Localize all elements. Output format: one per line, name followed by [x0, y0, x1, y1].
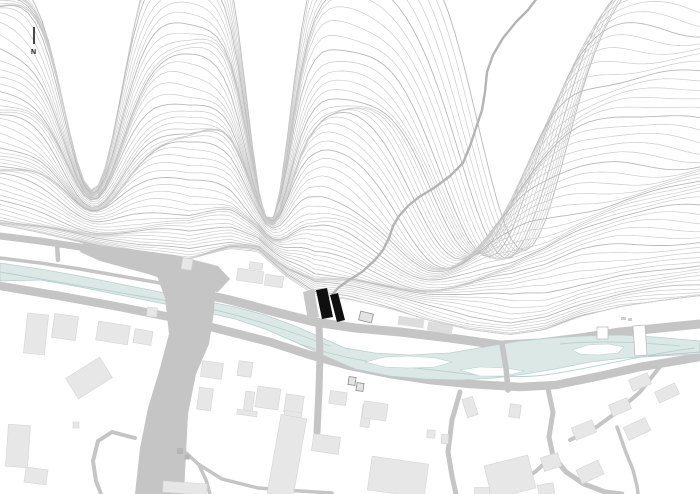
site-plan-map: N — [0, 0, 700, 494]
building — [177, 448, 183, 454]
building — [181, 258, 193, 271]
building — [24, 467, 48, 485]
building — [348, 377, 356, 386]
building — [200, 361, 223, 380]
building — [255, 386, 281, 410]
building — [23, 313, 48, 355]
building — [197, 387, 214, 411]
building — [264, 274, 283, 287]
building — [362, 401, 388, 421]
building — [237, 361, 253, 378]
building — [441, 434, 449, 443]
building — [509, 404, 522, 418]
building — [427, 430, 436, 439]
building — [6, 424, 31, 467]
building — [329, 390, 348, 405]
north-label: N — [31, 49, 36, 56]
building — [73, 422, 79, 428]
building — [475, 488, 490, 494]
building — [147, 307, 158, 317]
building — [51, 313, 78, 340]
building — [249, 262, 263, 271]
building — [311, 434, 340, 455]
building — [185, 455, 190, 460]
building — [356, 383, 364, 392]
building — [133, 329, 153, 346]
site-plan: N — [0, 0, 700, 494]
